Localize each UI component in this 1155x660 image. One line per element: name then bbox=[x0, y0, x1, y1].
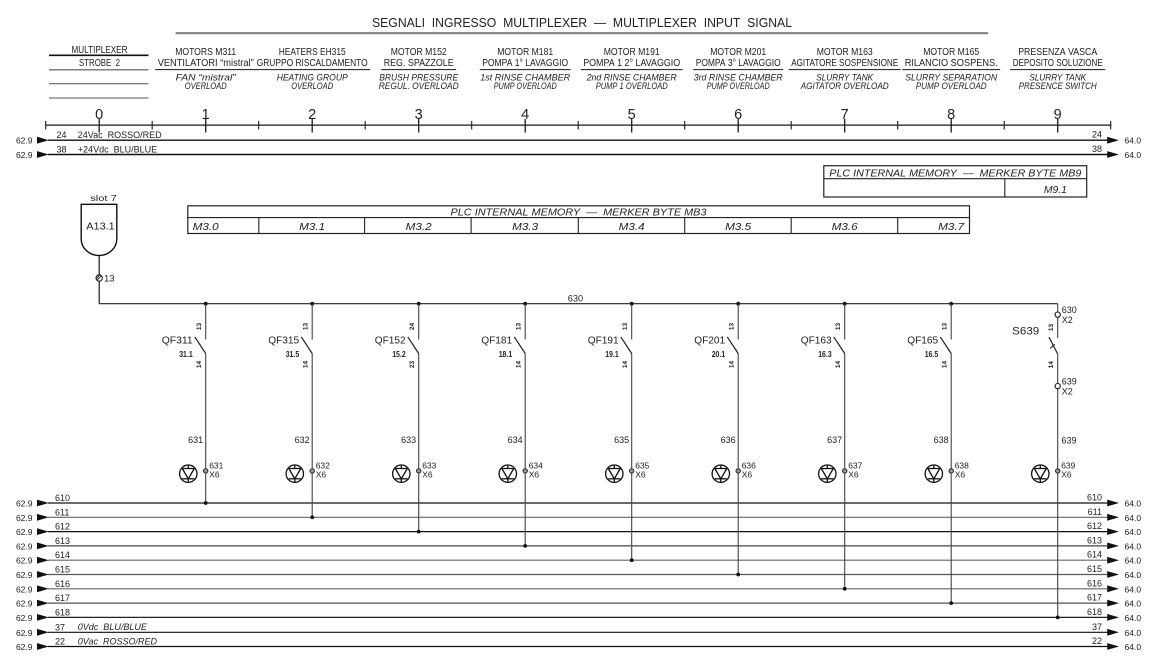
svg-text:24Vac ROSSO/RED: 24Vac ROSSO/RED bbox=[78, 130, 162, 140]
svg-text:PRESENCE SWITCH: PRESENCE SWITCH bbox=[1019, 81, 1097, 92]
svg-text:0Vac ROSSO/RED: 0Vac ROSSO/RED bbox=[78, 636, 158, 646]
svg-text:13: 13 bbox=[622, 323, 629, 331]
svg-text:13: 13 bbox=[1048, 324, 1055, 332]
svg-text:6: 6 bbox=[734, 107, 742, 123]
svg-text:64.0: 64.0 bbox=[1125, 628, 1142, 638]
svg-text:14: 14 bbox=[942, 361, 949, 369]
svg-text:613: 613 bbox=[1087, 535, 1102, 545]
svg-text:62.9: 62.9 bbox=[16, 499, 33, 509]
svg-text:62.9: 62.9 bbox=[16, 513, 33, 523]
svg-text:64.0: 64.0 bbox=[1125, 556, 1142, 566]
svg-text:616: 616 bbox=[1087, 578, 1102, 588]
svg-text:X6: X6 bbox=[848, 470, 859, 480]
svg-text:37: 37 bbox=[1092, 622, 1102, 632]
svg-text:X6: X6 bbox=[422, 470, 433, 480]
svg-text:617: 617 bbox=[55, 593, 70, 603]
svg-text:slot 7: slot 7 bbox=[90, 194, 117, 203]
svg-text:AGITATORE SOSPENSIONE: AGITATORE SOSPENSIONE bbox=[791, 58, 898, 69]
svg-text:635: 635 bbox=[614, 435, 629, 445]
svg-text:15.2: 15.2 bbox=[392, 350, 406, 359]
svg-text:14: 14 bbox=[303, 361, 310, 369]
svg-text:MOTOR M201: MOTOR M201 bbox=[710, 47, 766, 58]
svg-text:X6: X6 bbox=[635, 470, 646, 480]
svg-text:618: 618 bbox=[55, 607, 70, 617]
svg-text:638: 638 bbox=[934, 435, 949, 445]
svg-text:24: 24 bbox=[1092, 130, 1102, 140]
svg-text:64.0: 64.0 bbox=[1125, 513, 1142, 523]
svg-text:PUMP 1 OVERLOAD: PUMP 1 OVERLOAD bbox=[596, 81, 668, 92]
svg-text:62.9: 62.9 bbox=[16, 527, 33, 537]
svg-text:X2: X2 bbox=[1062, 315, 1073, 325]
svg-text:7: 7 bbox=[841, 107, 849, 123]
svg-text:13: 13 bbox=[942, 323, 949, 331]
svg-text:13: 13 bbox=[303, 323, 310, 331]
svg-text:3: 3 bbox=[415, 107, 423, 123]
svg-text:22: 22 bbox=[1092, 636, 1102, 646]
svg-text:13: 13 bbox=[516, 323, 523, 331]
svg-text:62.9: 62.9 bbox=[16, 599, 33, 609]
svg-text:634: 634 bbox=[508, 435, 523, 445]
svg-text:24: 24 bbox=[56, 130, 66, 140]
svg-text:62.9: 62.9 bbox=[16, 570, 33, 580]
svg-text:M3.7: M3.7 bbox=[938, 222, 965, 233]
svg-text:614: 614 bbox=[55, 550, 70, 560]
svg-text:64.0: 64.0 bbox=[1125, 136, 1142, 146]
svg-text:MOTOR M191: MOTOR M191 bbox=[604, 47, 660, 58]
svg-text:62.9: 62.9 bbox=[16, 556, 33, 566]
svg-text:X6: X6 bbox=[742, 470, 753, 480]
svg-text:611: 611 bbox=[55, 507, 69, 517]
svg-text:14: 14 bbox=[835, 361, 842, 369]
svg-text:PUMP OVERLOAD: PUMP OVERLOAD bbox=[494, 81, 557, 92]
svg-text:630: 630 bbox=[1062, 305, 1077, 315]
svg-text:QF165: QF165 bbox=[907, 334, 938, 346]
svg-text:4: 4 bbox=[521, 107, 529, 123]
svg-text:13: 13 bbox=[196, 323, 203, 331]
svg-text:13: 13 bbox=[104, 273, 115, 284]
svg-text:M3.4: M3.4 bbox=[619, 222, 646, 233]
svg-text:2: 2 bbox=[308, 107, 316, 123]
svg-text:POMPA 3° LAVAGGIO: POMPA 3° LAVAGGIO bbox=[696, 58, 781, 69]
svg-text:M3.2: M3.2 bbox=[406, 222, 433, 233]
svg-text:X6: X6 bbox=[1061, 470, 1072, 480]
svg-text:24: 24 bbox=[409, 323, 416, 331]
svg-text:OVERLOAD: OVERLOAD bbox=[291, 81, 333, 92]
svg-text:1: 1 bbox=[202, 107, 210, 123]
svg-text:STROBE 2: STROBE 2 bbox=[79, 58, 120, 69]
svg-text:62.9: 62.9 bbox=[16, 136, 33, 146]
svg-text:616: 616 bbox=[55, 579, 70, 589]
svg-text:631: 631 bbox=[188, 435, 203, 445]
svg-text:37: 37 bbox=[55, 622, 65, 632]
svg-text:62.9: 62.9 bbox=[16, 584, 33, 594]
svg-text:613: 613 bbox=[55, 536, 70, 546]
svg-text:8: 8 bbox=[947, 107, 955, 123]
svg-text:64.0: 64.0 bbox=[1125, 613, 1142, 623]
svg-text:20.1: 20.1 bbox=[712, 350, 726, 359]
svg-text:POMPA 1° LAVAGGIO: POMPA 1° LAVAGGIO bbox=[482, 58, 568, 69]
svg-text:QF201: QF201 bbox=[694, 334, 725, 346]
svg-text:16.3: 16.3 bbox=[818, 350, 832, 359]
svg-text:A13.1: A13.1 bbox=[86, 221, 115, 233]
svg-text:QF181: QF181 bbox=[481, 334, 512, 346]
svg-text:62.9: 62.9 bbox=[16, 628, 33, 638]
svg-text:633: 633 bbox=[401, 435, 416, 445]
svg-text:SEGNALI INGRESSO MULTIPLEXER: SEGNALI INGRESSO MULTIPLEXER — MULTIPLEX… bbox=[372, 15, 792, 30]
svg-text:64.0: 64.0 bbox=[1125, 584, 1142, 594]
svg-text:M3.0: M3.0 bbox=[193, 222, 220, 233]
svg-text:MOTOR M163: MOTOR M163 bbox=[817, 47, 873, 58]
svg-text:X6: X6 bbox=[209, 470, 220, 480]
svg-text:38: 38 bbox=[1092, 144, 1102, 154]
svg-text:REG. SPAZZOLE: REG. SPAZZOLE bbox=[384, 58, 454, 69]
svg-text:31.5: 31.5 bbox=[286, 350, 300, 359]
svg-text:615: 615 bbox=[55, 565, 70, 575]
svg-text:QF311: QF311 bbox=[162, 334, 193, 346]
svg-text:M3.1: M3.1 bbox=[299, 222, 325, 233]
svg-text:M3.3: M3.3 bbox=[512, 222, 539, 233]
svg-text:AGITATOR OVERLOAD: AGITATOR OVERLOAD bbox=[800, 81, 889, 92]
svg-text:62.9: 62.9 bbox=[16, 642, 33, 652]
svg-text:9: 9 bbox=[1054, 107, 1062, 123]
svg-text:HEATERS EH315: HEATERS EH315 bbox=[279, 47, 346, 58]
svg-text:MOTOR M152: MOTOR M152 bbox=[391, 47, 447, 58]
svg-text:M3.6: M3.6 bbox=[832, 222, 859, 233]
svg-text:612: 612 bbox=[1087, 521, 1102, 531]
svg-text:62.9: 62.9 bbox=[16, 150, 33, 160]
svg-text:0Vdc BLU/BLUE: 0Vdc BLU/BLUE bbox=[78, 622, 148, 632]
svg-text:64.0: 64.0 bbox=[1125, 150, 1142, 160]
svg-text:610: 610 bbox=[55, 493, 70, 503]
svg-text:X6: X6 bbox=[955, 470, 966, 480]
svg-text:38: 38 bbox=[56, 144, 66, 154]
svg-text:PUMP OVERLOAD: PUMP OVERLOAD bbox=[916, 81, 987, 92]
svg-text:62.9: 62.9 bbox=[16, 613, 33, 623]
svg-text:14: 14 bbox=[729, 361, 736, 369]
svg-text:QF315: QF315 bbox=[268, 334, 299, 346]
svg-text:13: 13 bbox=[729, 323, 736, 331]
svg-text:14: 14 bbox=[1048, 361, 1055, 369]
svg-text:64.0: 64.0 bbox=[1125, 499, 1142, 509]
svg-text:S639: S639 bbox=[1012, 325, 1039, 337]
svg-text:14: 14 bbox=[622, 361, 629, 369]
svg-text:614: 614 bbox=[1087, 550, 1102, 560]
svg-text:637: 637 bbox=[827, 435, 842, 445]
svg-text:PRESENZA VASCA: PRESENZA VASCA bbox=[1018, 47, 1097, 58]
svg-text:X6: X6 bbox=[529, 470, 540, 480]
svg-text:M3.5: M3.5 bbox=[725, 222, 752, 233]
svg-text:DEPOSITO SOLUZIONE: DEPOSITO SOLUZIONE bbox=[1013, 58, 1103, 69]
svg-text:64.0: 64.0 bbox=[1125, 570, 1142, 580]
svg-text:630: 630 bbox=[568, 293, 583, 303]
svg-text:5: 5 bbox=[628, 107, 636, 123]
svg-text:19.1: 19.1 bbox=[605, 350, 619, 359]
svg-text:14: 14 bbox=[196, 361, 203, 369]
svg-text:612: 612 bbox=[55, 522, 70, 532]
svg-text:X2: X2 bbox=[1062, 386, 1073, 396]
svg-text:64.0: 64.0 bbox=[1125, 599, 1142, 609]
svg-text:618: 618 bbox=[1087, 607, 1102, 617]
svg-text:0: 0 bbox=[95, 107, 103, 123]
svg-text:POMPA 1 2° LAVAGGIO: POMPA 1 2° LAVAGGIO bbox=[583, 58, 680, 69]
svg-text:PLC INTERNAL MEMORY — MERKER: PLC INTERNAL MEMORY — MERKER BYTE MB9 bbox=[829, 168, 1082, 179]
svg-text:16.5: 16.5 bbox=[925, 350, 939, 359]
svg-text:610: 610 bbox=[1087, 493, 1102, 503]
svg-text:VENTILATORI “mistral”: VENTILATORI “mistral” bbox=[158, 58, 255, 69]
svg-text:632: 632 bbox=[295, 435, 310, 445]
svg-text:22: 22 bbox=[55, 637, 65, 647]
svg-text:18.1: 18.1 bbox=[499, 350, 513, 359]
svg-text:+24Vdc BLU/BLUE: +24Vdc BLU/BLUE bbox=[78, 144, 157, 154]
svg-text:QF152: QF152 bbox=[375, 334, 406, 346]
svg-text:64.0: 64.0 bbox=[1125, 642, 1142, 652]
svg-text:X6: X6 bbox=[316, 470, 327, 480]
svg-text:MOTOR M181: MOTOR M181 bbox=[497, 47, 553, 58]
svg-text:14: 14 bbox=[516, 361, 523, 369]
svg-text:64.0: 64.0 bbox=[1125, 541, 1142, 551]
svg-text:636: 636 bbox=[721, 435, 736, 445]
svg-text:QF191: QF191 bbox=[588, 334, 619, 346]
svg-text:639: 639 bbox=[1062, 377, 1077, 387]
svg-text:615: 615 bbox=[1087, 564, 1102, 574]
svg-text:RILANCIO SOSPENS.: RILANCIO SOSPENS. bbox=[905, 58, 998, 69]
svg-text:639: 639 bbox=[1062, 435, 1077, 445]
svg-text:OVERLOAD: OVERLOAD bbox=[185, 81, 227, 92]
svg-text:MOTORS M311: MOTORS M311 bbox=[175, 47, 236, 58]
svg-text:MOTOR M165: MOTOR M165 bbox=[923, 47, 979, 58]
svg-text:PLC INTERNAL MEMORY — MERKER: PLC INTERNAL MEMORY — MERKER BYTE MB3 bbox=[451, 207, 708, 218]
svg-text:GRUPPO RISCALDAMENTO: GRUPPO RISCALDAMENTO bbox=[257, 58, 368, 69]
svg-text:611: 611 bbox=[1088, 507, 1102, 517]
svg-text:23: 23 bbox=[409, 361, 416, 369]
svg-text:64.0: 64.0 bbox=[1125, 527, 1142, 537]
svg-text:31.1: 31.1 bbox=[179, 350, 193, 359]
svg-text:QF163: QF163 bbox=[801, 334, 832, 346]
svg-text:62.9: 62.9 bbox=[16, 541, 33, 551]
svg-text:PUMP OVERLOAD: PUMP OVERLOAD bbox=[707, 81, 770, 92]
svg-text:REGUL. OVERLOAD: REGUL. OVERLOAD bbox=[379, 81, 459, 92]
svg-text:13: 13 bbox=[835, 323, 842, 331]
svg-text:M9.1: M9.1 bbox=[1044, 185, 1067, 196]
svg-text:617: 617 bbox=[1087, 593, 1102, 603]
